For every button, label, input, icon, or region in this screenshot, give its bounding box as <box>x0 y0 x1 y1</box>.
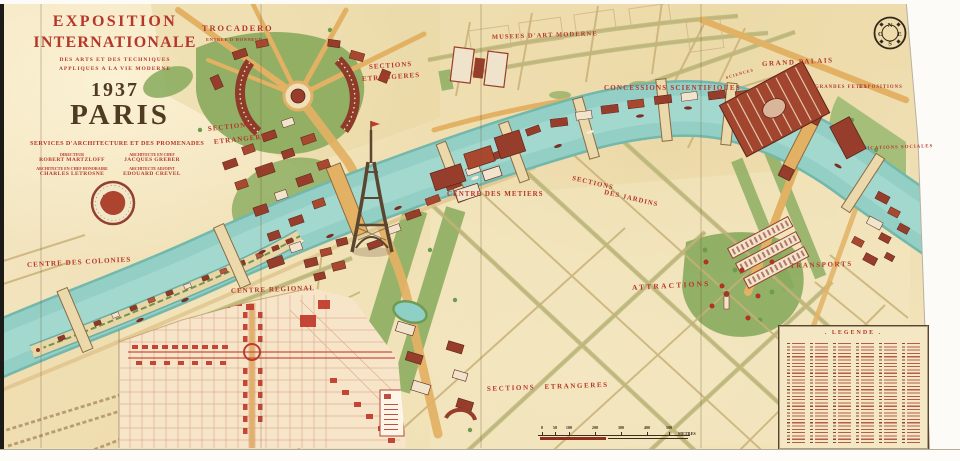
legend-column <box>787 343 806 443</box>
legend-title: . LEGENDE . <box>779 330 928 336</box>
scale-tick-label: 50 <box>553 426 557 430</box>
legend-box: . LEGENDE . <box>778 325 929 450</box>
map-sheet[interactable]: N E S O EXPOSITION INTERNATIONALE DES AR… <box>0 0 960 460</box>
sheet-edge-top <box>0 0 960 4</box>
label-centre-des-metiers: CENTRE DES METIERS <box>447 191 544 198</box>
legend-column <box>833 343 852 443</box>
label-trocadero: TROCADERO <box>202 24 273 33</box>
label-expositions: EXPOSITIONS <box>859 86 903 91</box>
title-year: 1937 <box>35 80 195 100</box>
services-heading: SERVICES D'ARCHITECTURE ET DES PROMENADE… <box>30 141 195 147</box>
scale-tick-label: 200 <box>592 426 598 430</box>
scale-tick-label: 100 <box>566 426 572 430</box>
scale-line <box>538 435 690 436</box>
compass-e: E <box>897 31 901 38</box>
sheet-edge-bottom <box>0 449 960 461</box>
credit-name-3: EDOUARD CREVEL <box>97 172 207 178</box>
legend-column <box>902 343 921 443</box>
scale-tick-label: 400 <box>644 426 650 430</box>
globe-medallion <box>92 182 134 224</box>
title-sub2: APPLIQUES A LA VIE MODERNE <box>30 67 200 73</box>
legend-column <box>810 343 829 443</box>
title-line2: INTERNATIONALE <box>25 35 205 51</box>
scale-tick-label: 0 <box>541 426 543 430</box>
sheet-edge-left <box>0 0 4 450</box>
scale-tick-label: 300 <box>618 426 624 430</box>
screenshot-root: { "title": { "line1": "EXPOSITION", "lin… <box>0 0 960 460</box>
title-sub1: DES ARTS ET DES TECHNIQUES <box>30 58 200 64</box>
title-city: PARIS <box>35 101 205 130</box>
scale-tick-label: 500 <box>666 426 672 430</box>
compass-s: S <box>888 41 892 48</box>
compass-n: N <box>888 22 893 29</box>
label-entree-honneur: ENTREE D'HONNEUR <box>206 38 263 43</box>
title-line1: EXPOSITION <box>30 14 200 30</box>
scale-bar-segment <box>540 437 606 440</box>
scale-bar-segment <box>608 438 688 440</box>
compass-o: O <box>878 31 883 38</box>
credit-name-1: JACQUES GREBER <box>97 158 207 164</box>
legend-column <box>856 343 875 443</box>
legend-column <box>879 343 898 443</box>
label-concessions-scientifiques: CONCESSIONS SCIENTIFIQUES <box>604 85 741 92</box>
scale-bar: 0 50 100 200 300 400 500 METRES <box>538 426 696 443</box>
